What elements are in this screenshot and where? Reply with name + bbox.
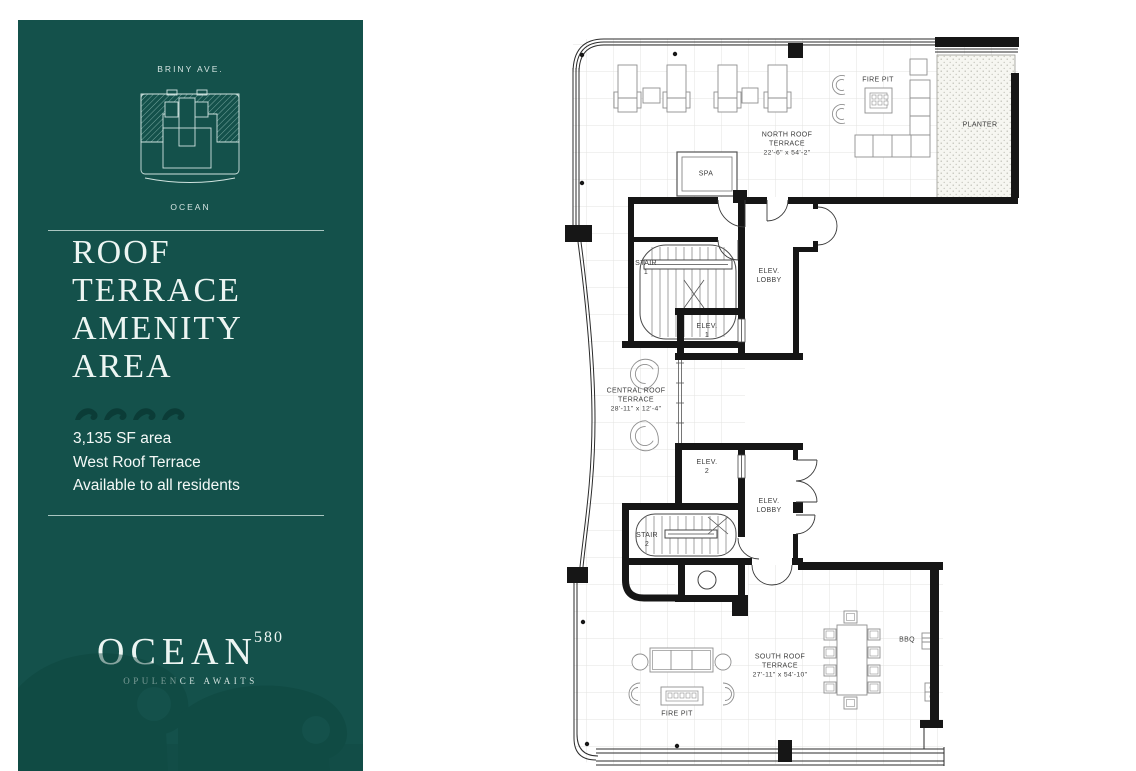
waves-icon	[74, 405, 194, 423]
label-central-terrace: CENTRAL ROOF TERRACE 28'-11" x 12'-4"	[595, 387, 677, 414]
label-spa: SPA	[686, 170, 726, 179]
page-title: ROOF TERRACE AMENITY AREA	[72, 234, 243, 386]
label-bbq: BBQ	[892, 636, 922, 645]
info-panel: BRINY AVE. OCEAN ROOF	[18, 20, 363, 771]
label-elev-2: ELEV. 2	[694, 458, 720, 476]
round-table	[698, 571, 716, 589]
title-line-1: ROOF	[72, 234, 243, 272]
availability-text: Available to all residents	[73, 474, 240, 498]
amenity-details: 3,135 SF area West Roof Terrace Availabl…	[73, 427, 240, 498]
label-south-terrace: SOUTH ROOF TERRACE 27'-11" x 54'-10"	[742, 653, 818, 680]
title-line-3: AMENITY	[72, 310, 243, 348]
label-elev-1: ELEV. 1	[694, 322, 720, 340]
label-elev-lobby-upper: ELEV. LOBBY	[752, 267, 786, 285]
divider	[48, 230, 324, 231]
label-fire-pit-north: FIRE PIT	[853, 76, 903, 85]
label-stair-2: STAIR 2	[634, 531, 660, 549]
label-stair-1: STAIR 1	[633, 259, 659, 277]
area-text: 3,135 SF area	[73, 427, 240, 451]
title-line-4: AREA	[72, 348, 243, 386]
label-planter: PLANTER	[950, 121, 1010, 130]
location-text: West Roof Terrace	[73, 451, 240, 475]
label-fire-pit-south: FIRE PIT	[652, 710, 702, 719]
street-label: BRINY AVE.	[18, 64, 363, 74]
label-north-terrace: NORTH ROOF TERRACE 22'-6" x 54'-2"	[755, 131, 819, 158]
wave-motif	[18, 636, 363, 771]
floor-plan: NORTH ROOF TERRACE 22'-6" x 54'-2" FIRE …	[556, 28, 1036, 771]
ocean-label: OCEAN	[18, 202, 363, 212]
label-elev-lobby-lower: ELEV. LOBBY	[752, 497, 786, 515]
divider	[48, 515, 324, 516]
site-plan-diagram	[135, 84, 245, 190]
brochure-page: BRINY AVE. OCEAN ROOF	[0, 0, 1136, 771]
title-line-2: TERRACE	[72, 272, 243, 310]
